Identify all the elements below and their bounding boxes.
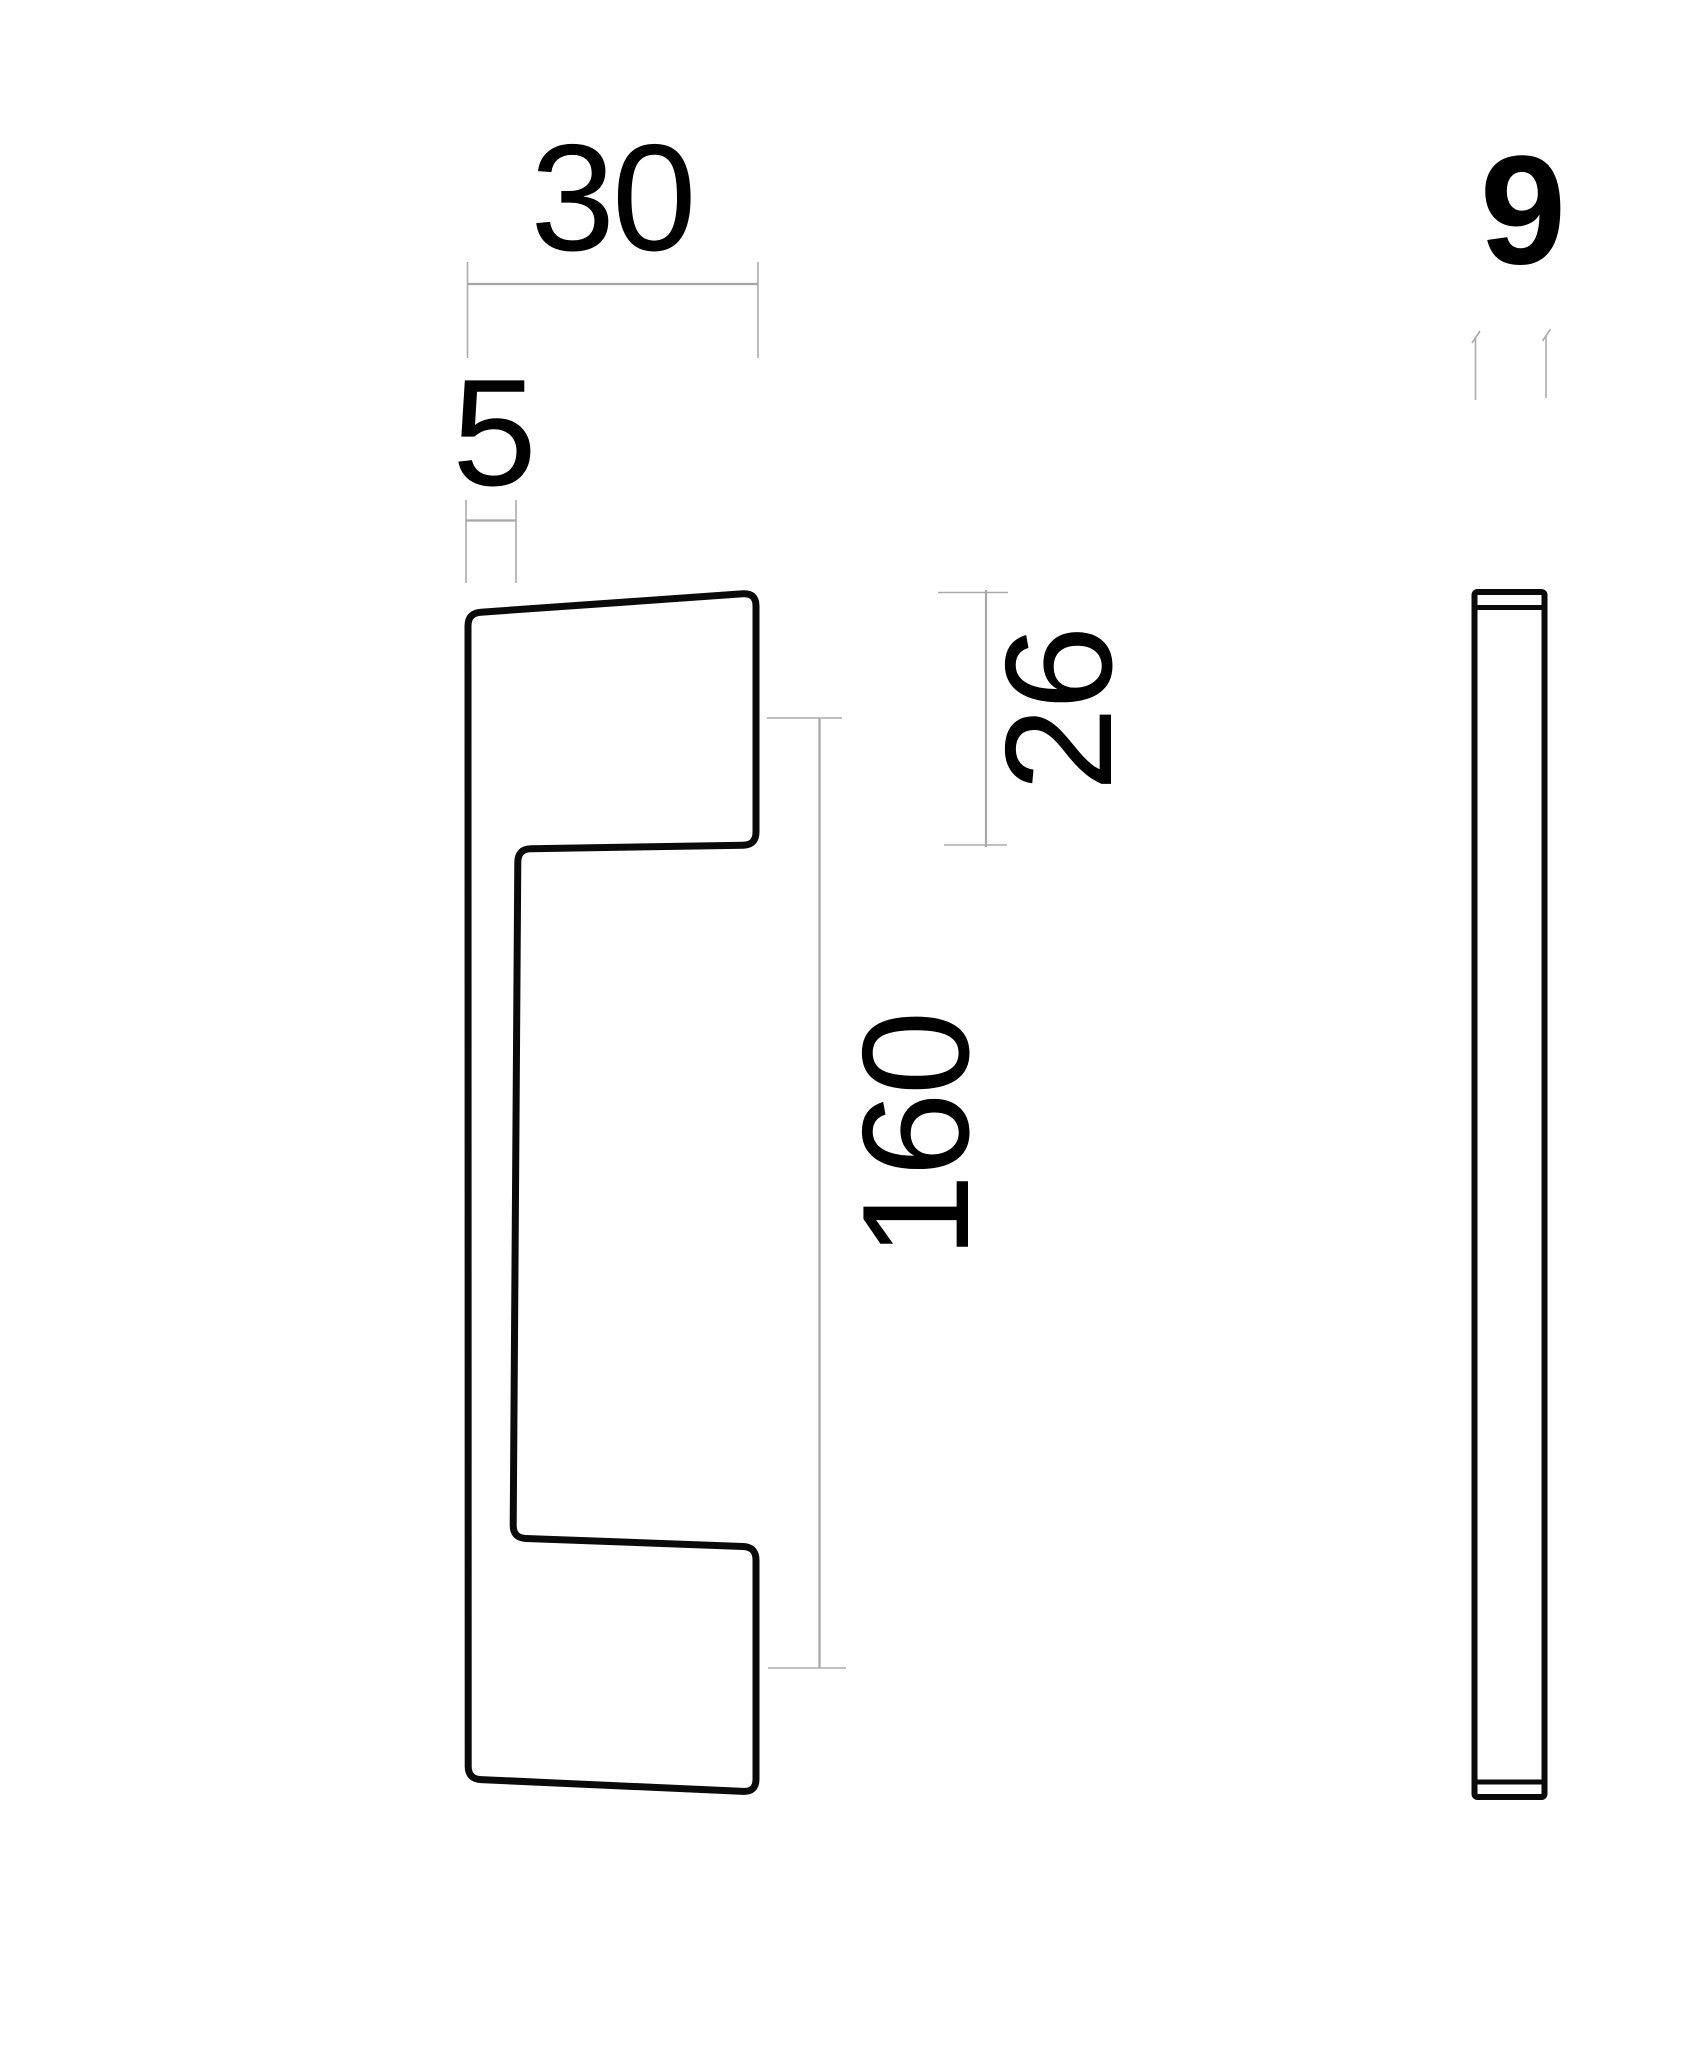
dimension-160: 160 bbox=[767, 718, 1001, 1668]
dimension-26: 26 bbox=[938, 590, 1144, 847]
dim-160-label: 160 bbox=[831, 1014, 1001, 1259]
dim-26-label: 26 bbox=[974, 628, 1144, 791]
technical-drawing-canvas: 30 5 26 160 9 bbox=[0, 0, 1704, 2048]
edge-view bbox=[1474, 592, 1545, 1797]
handle-edge-outline bbox=[1475, 592, 1545, 1797]
dim-9-label: 9 bbox=[1480, 124, 1566, 297]
dim-30-label: 30 bbox=[530, 113, 693, 283]
dimension-30: 30 bbox=[467, 113, 758, 358]
handle-profile-outline bbox=[468, 594, 756, 1792]
dimension-5: 5 bbox=[452, 348, 534, 583]
dim-5-label: 5 bbox=[452, 348, 534, 518]
dimension-9: 9 bbox=[1472, 124, 1566, 401]
side-profile-view bbox=[468, 594, 756, 1792]
drawing-sheet: 30 5 26 160 9 bbox=[0, 0, 1704, 2048]
